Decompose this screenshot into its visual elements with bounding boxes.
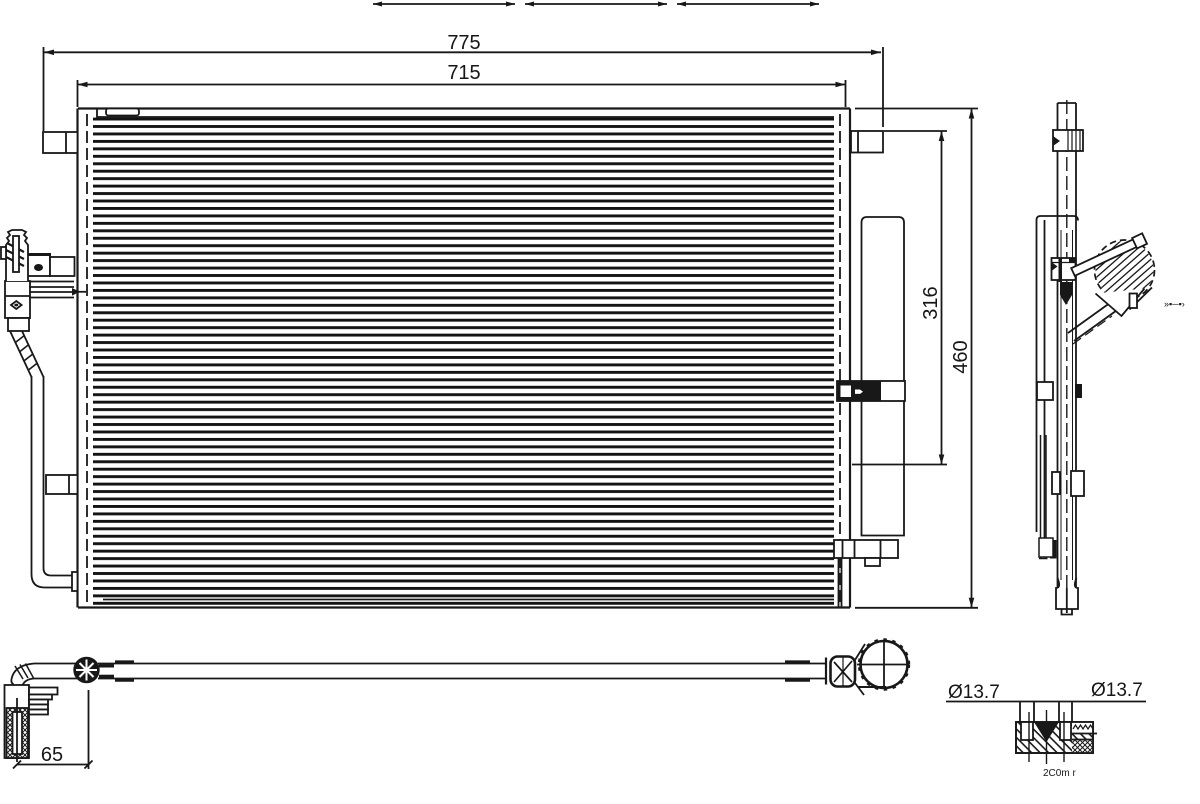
svg-text:Ø13.7: Ø13.7 (1091, 680, 1143, 701)
svg-text:Ø13.7: Ø13.7 (948, 682, 1000, 703)
svg-text:715: 715 (447, 62, 480, 84)
svg-text:65: 65 (41, 744, 63, 766)
svg-text:»▪─▪›: »▪─▪› (1164, 299, 1185, 309)
svg-text:775: 775 (447, 32, 480, 54)
svg-text:460: 460 (950, 340, 972, 373)
svg-text:2C0m r: 2C0m r (1043, 768, 1076, 779)
svg-text:316: 316 (920, 286, 942, 319)
